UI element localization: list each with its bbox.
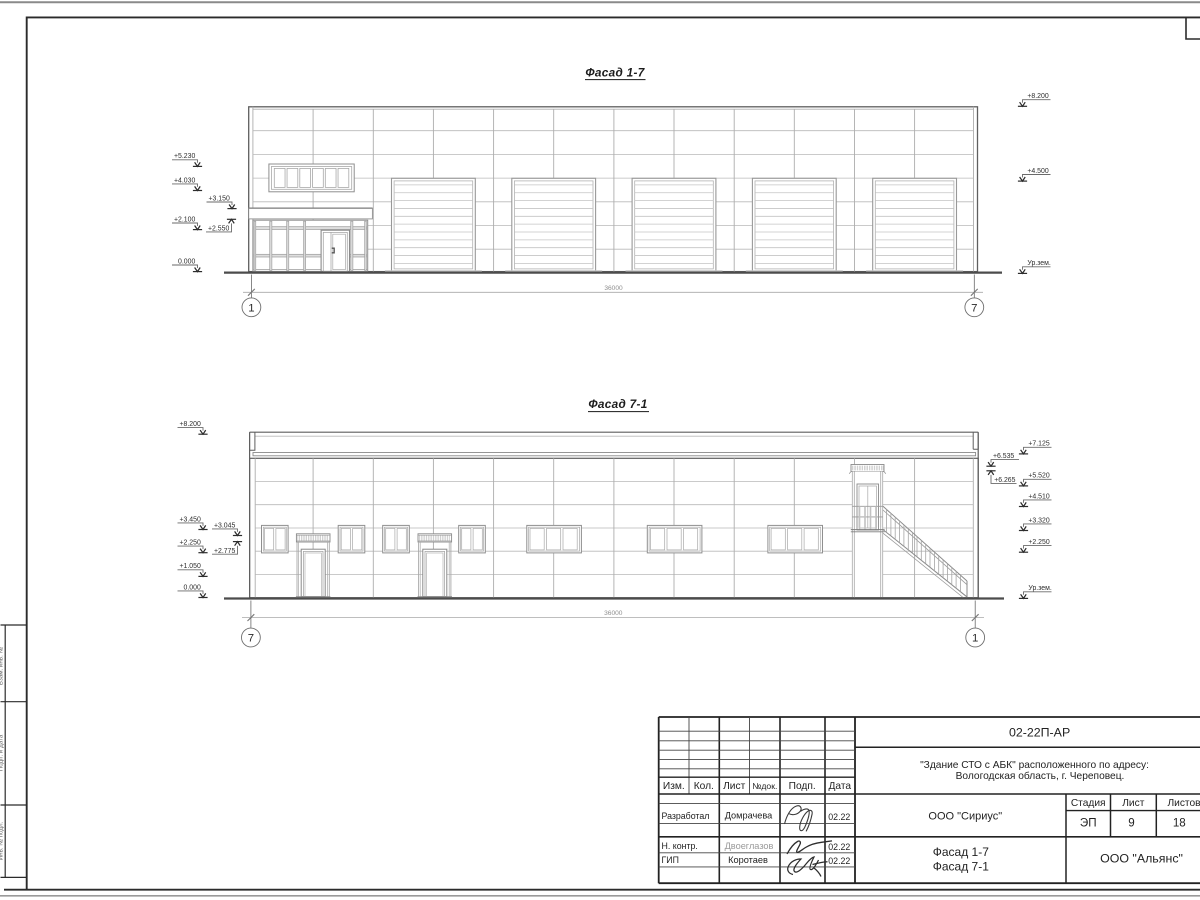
svg-text:Коротаев: Коротаев — [728, 855, 768, 865]
svg-text:+3.150: +3.150 — [209, 195, 230, 202]
svg-text:+6.265: +6.265 — [994, 477, 1015, 484]
svg-text:Лист: Лист — [1122, 798, 1144, 809]
svg-text:№док.: №док. — [752, 781, 777, 791]
svg-text:Разработал: Разработал — [662, 811, 710, 821]
svg-text:Кол.: Кол. — [694, 781, 714, 792]
svg-text:Ур.зем.: Ур.зем. — [1028, 585, 1051, 592]
svg-text:36000: 36000 — [604, 285, 623, 292]
svg-text:7: 7 — [971, 302, 977, 314]
svg-text:Дата: Дата — [829, 781, 852, 792]
svg-text:+8.200: +8.200 — [1027, 93, 1048, 100]
svg-text:+3.045: +3.045 — [214, 522, 235, 529]
svg-text:02.22: 02.22 — [828, 812, 850, 822]
svg-text:+4.500: +4.500 — [1027, 168, 1048, 175]
svg-text:Листов: Листов — [1167, 798, 1200, 809]
svg-text:+2.550: +2.550 — [208, 226, 229, 233]
svg-text:Фасад 1-7: Фасад 1-7 — [585, 66, 645, 80]
svg-text:+8.200: +8.200 — [180, 421, 201, 428]
svg-text:Н. контр.: Н. контр. — [662, 841, 698, 851]
svg-text:36000: 36000 — [604, 610, 623, 617]
svg-text:Изм.: Изм. — [663, 781, 685, 792]
svg-text:Фасад 7-1: Фасад 7-1 — [588, 397, 647, 411]
svg-text:ООО "Сириус": ООО "Сириус" — [928, 811, 1002, 823]
svg-text:+1.050: +1.050 — [180, 563, 201, 570]
svg-text:+5.230: +5.230 — [174, 153, 195, 160]
svg-text:Домрачева: Домрачева — [725, 810, 773, 820]
svg-text:Лист: Лист — [723, 781, 745, 792]
svg-text:+7.125: +7.125 — [1028, 441, 1049, 448]
svg-text:7: 7 — [248, 633, 254, 645]
svg-text:1: 1 — [972, 633, 978, 645]
svg-text:18: 18 — [1173, 816, 1186, 829]
svg-text:+6.535: +6.535 — [993, 453, 1014, 460]
svg-text:9: 9 — [1128, 816, 1134, 829]
svg-text:ГИП: ГИП — [662, 855, 679, 865]
svg-text:Фасад 7-1: Фасад 7-1 — [933, 859, 989, 873]
svg-text:Стадия: Стадия — [1071, 798, 1106, 809]
svg-text:+2.250: +2.250 — [180, 540, 201, 547]
svg-text:"Здание СТО с АБК" расположенн: "Здание СТО с АБК" расположенного по адр… — [920, 760, 1149, 771]
svg-text:0.000: 0.000 — [184, 584, 201, 591]
svg-text:+4.510: +4.510 — [1028, 493, 1049, 500]
svg-text:0.000: 0.000 — [178, 258, 195, 265]
svg-text:ООО "Альянс": ООО "Альянс" — [1100, 852, 1183, 866]
svg-text:Ур.зем.: Ур.зем. — [1027, 260, 1050, 267]
svg-text:02.22: 02.22 — [828, 842, 850, 852]
svg-text:+2.250: +2.250 — [1028, 539, 1049, 546]
svg-text:+4.030: +4.030 — [174, 177, 195, 184]
svg-text:Двоеглазов: Двоеглазов — [725, 841, 774, 851]
svg-text:+2.100: +2.100 — [174, 216, 195, 223]
svg-text:+2.775: +2.775 — [214, 548, 235, 555]
svg-text:+3.320: +3.320 — [1028, 517, 1049, 524]
svg-text:02.22: 02.22 — [828, 856, 850, 866]
svg-text:Подп. и дата: Подп. и дата — [0, 734, 5, 771]
svg-text:Фасад 1-7: Фасад 1-7 — [933, 845, 989, 859]
svg-text:+5.520: +5.520 — [1028, 473, 1049, 480]
svg-text:ЭП: ЭП — [1080, 816, 1097, 829]
svg-text:Взам. инв. №: Взам. инв. № — [0, 646, 5, 685]
svg-text:+3.450: +3.450 — [180, 516, 201, 523]
svg-text:Вологодская область, г. Черепо: Вологодская область, г. Череповец. — [956, 770, 1125, 782]
svg-text:1: 1 — [248, 302, 254, 314]
svg-text:Инв. № подл.: Инв. № подл. — [0, 821, 5, 860]
svg-text:Подп.: Подп. — [789, 781, 816, 792]
svg-text:02-22П-АР: 02-22П-АР — [1009, 725, 1070, 739]
